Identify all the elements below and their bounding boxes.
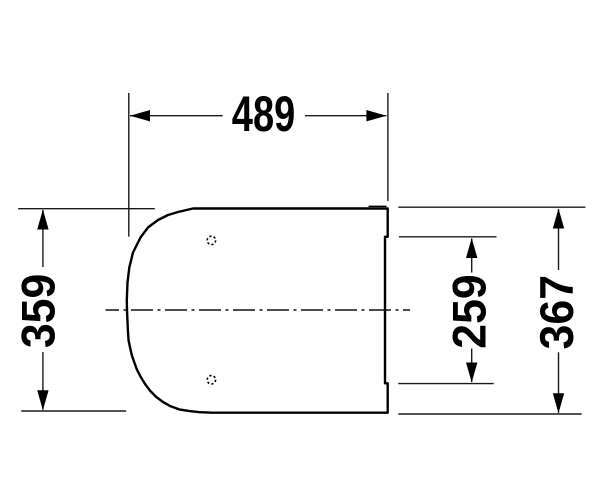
svg-text:489: 489 — [232, 87, 295, 142]
svg-text:259: 259 — [444, 274, 496, 348]
svg-text:367: 367 — [531, 275, 583, 349]
svg-text:359: 359 — [12, 274, 64, 348]
